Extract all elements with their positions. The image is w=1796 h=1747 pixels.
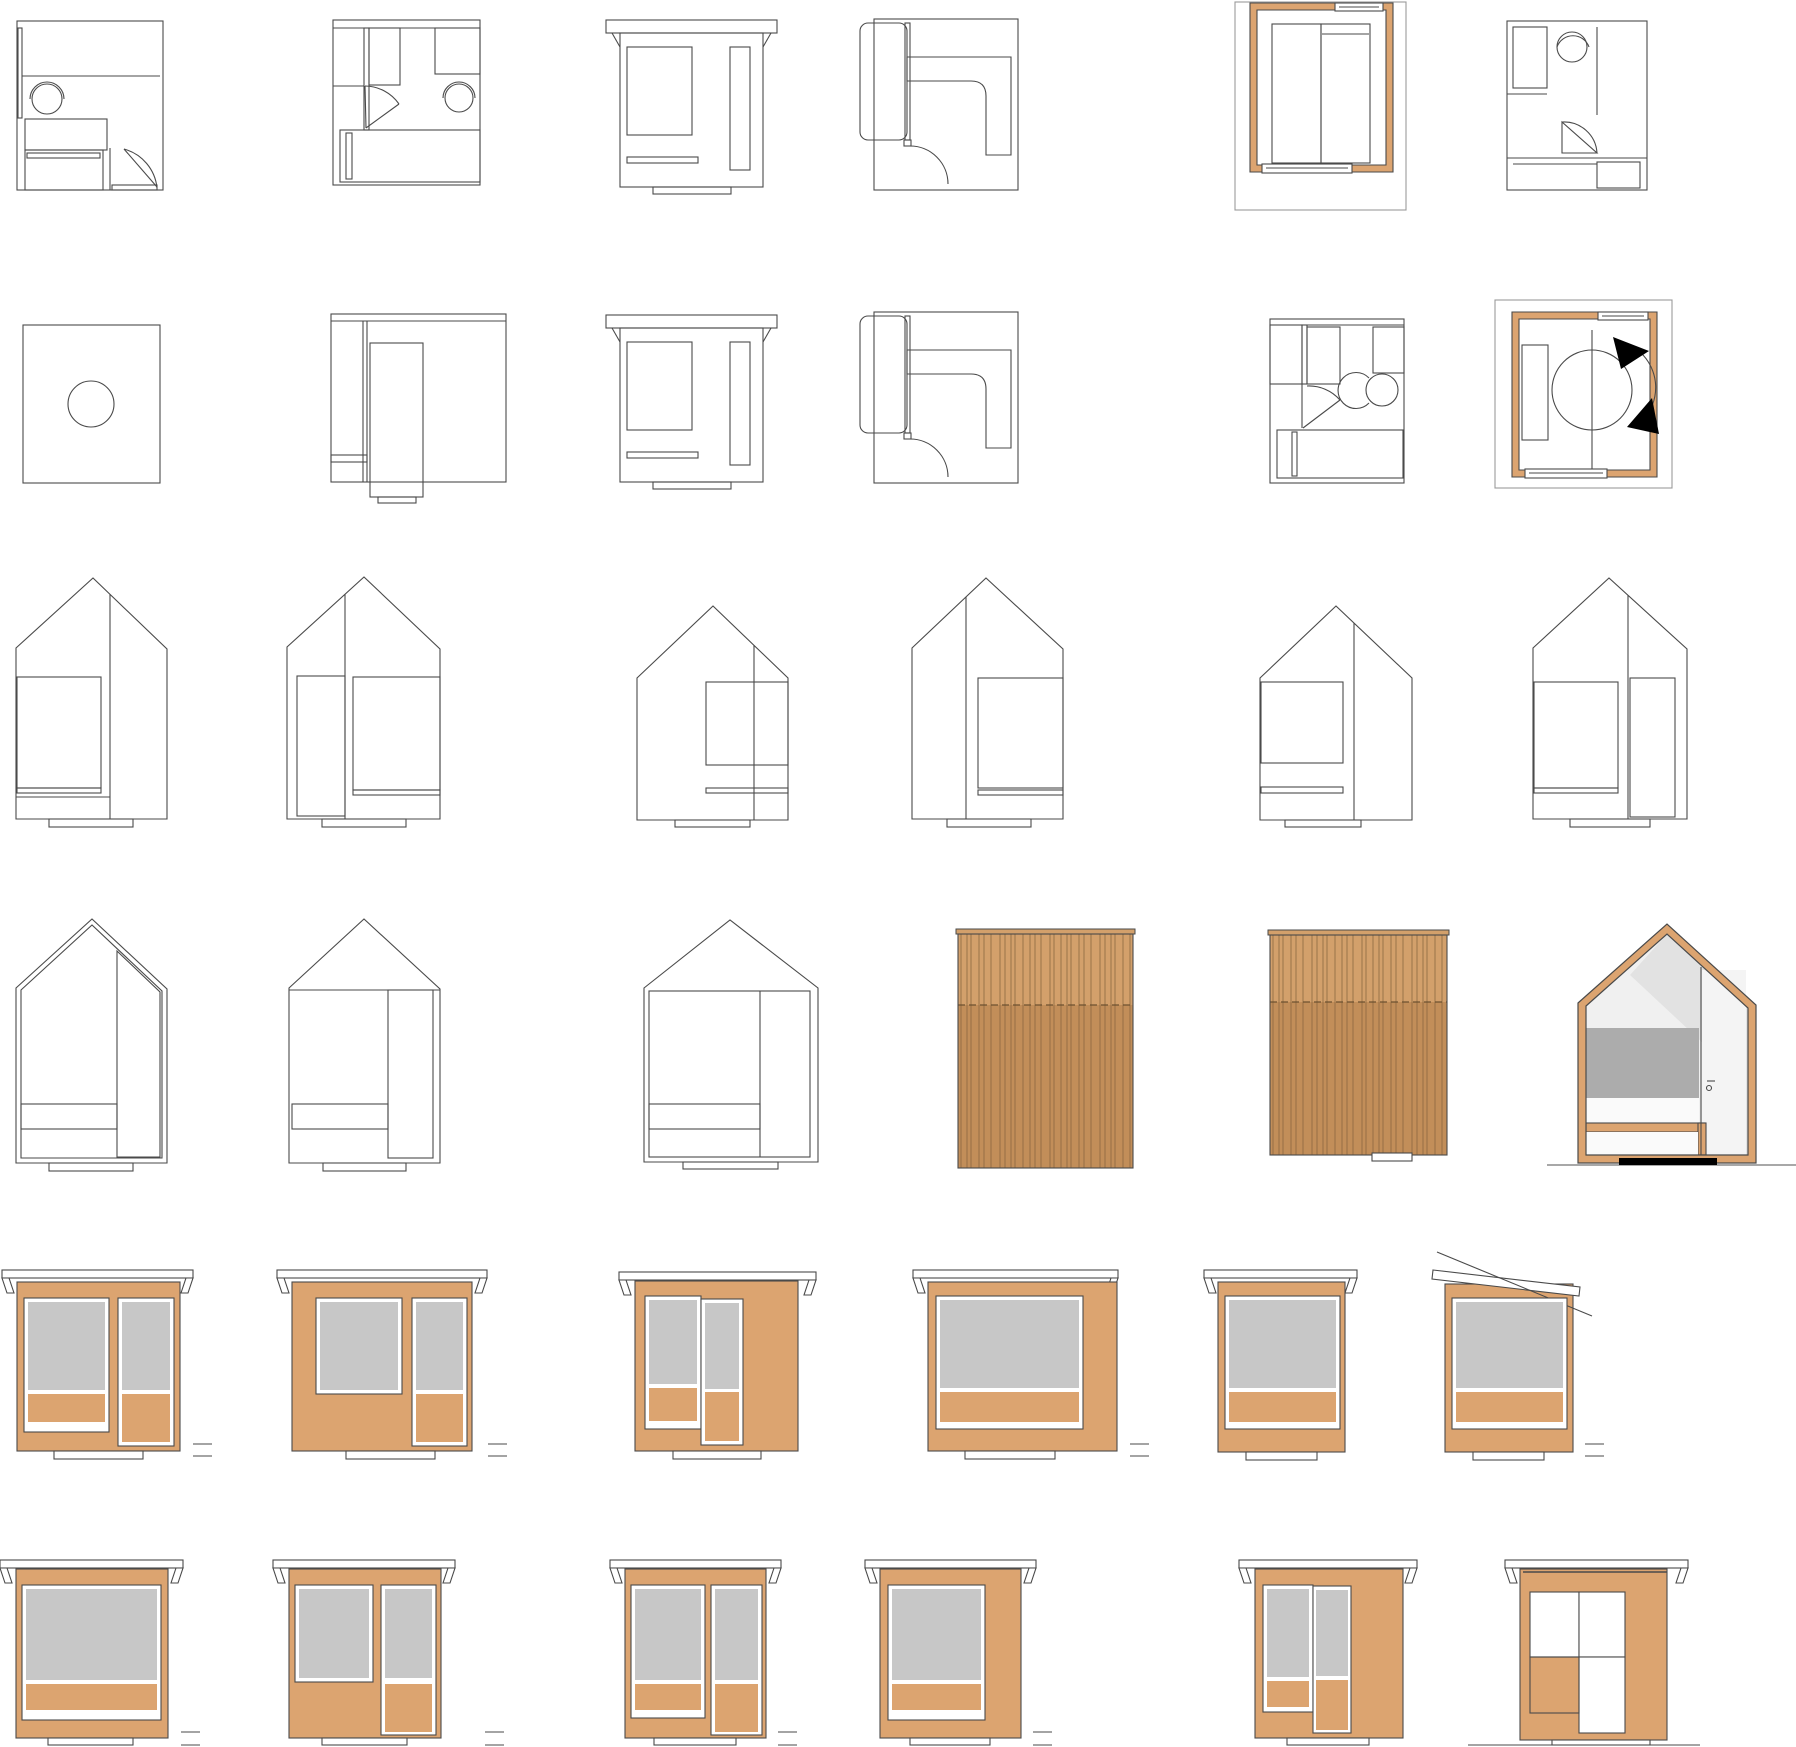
facade-1-glazing <box>122 1302 170 1390</box>
section-line-3-bench <box>649 1104 760 1129</box>
facade-1-door-panel <box>122 1394 170 1442</box>
elevation-line-6-door <box>1630 678 1675 817</box>
floor-plan-1-s7 <box>27 153 100 158</box>
facade-4-eave <box>913 1270 1118 1278</box>
elevation-line-5-gable-outline <box>1260 606 1412 820</box>
facade-10-s2 <box>1024 1568 1036 1583</box>
floor-plan-6-chair-symbol <box>1366 374 1398 406</box>
floor-plan-5-sofa-symbol <box>907 350 1011 448</box>
plan-rotating-table <box>1495 300 1672 488</box>
floor-plan-5-s0 <box>874 312 1018 483</box>
facade-panel-diagram <box>1468 1560 1700 1745</box>
facade-6-tilted-roof-spandrel <box>1456 1392 1563 1422</box>
floor-plan-6-s12 <box>1338 373 1369 409</box>
cross-section-colored-s6 <box>1586 1098 1699 1123</box>
drawing-sheet-svg <box>0 0 1796 1747</box>
facade-panel-diagram-panel-door <box>1579 1657 1625 1733</box>
facade-2-glazing <box>416 1302 463 1390</box>
facade-9-glazing <box>635 1589 701 1680</box>
section-line-3 <box>644 920 818 1169</box>
floor-plan-4-s1 <box>1513 27 1547 88</box>
facade-4-spandrel <box>940 1392 1079 1422</box>
floor-plan-3-door-swing <box>910 146 948 184</box>
facade-11-glazing <box>1316 1590 1348 1676</box>
facade-4 <box>913 1270 1149 1459</box>
facade-2-plinth <box>346 1451 435 1459</box>
facade-2-glazing <box>320 1302 398 1390</box>
elevation-line-5-window <box>1261 682 1343 763</box>
section-line-2-bench <box>292 1104 388 1129</box>
facade-8-s1 <box>273 1568 285 1583</box>
elevation-line-1-sill <box>17 788 101 793</box>
elevation-line-6-gable-outline <box>1533 578 1687 819</box>
facade-4-plinth <box>965 1451 1055 1459</box>
facade-2-eave <box>277 1270 487 1278</box>
facade-11-door-panel <box>1316 1680 1348 1730</box>
elevation-line-6-plinth <box>1570 819 1650 827</box>
elevation-line-4-window <box>978 678 1063 788</box>
facade-panel-diagram-panel-window <box>1530 1592 1579 1657</box>
roof-plan-2 <box>606 315 777 489</box>
roof-plan-2-eave-slab <box>606 315 777 328</box>
floor-plan-2-s5 <box>435 28 480 74</box>
floor-plan-5-door-zone <box>860 316 907 433</box>
elevation-line-6 <box>1533 578 1687 827</box>
facade-7-plinth <box>48 1738 133 1745</box>
facade-8-door-panel <box>385 1684 432 1732</box>
facade-9-eave <box>610 1560 781 1568</box>
elevation-line-5-sill <box>1261 787 1343 793</box>
section-line-3-inner-shell <box>649 991 810 1157</box>
floor-plan-2-door-leaf <box>366 104 399 128</box>
roof-plan-2-s1 <box>612 328 620 342</box>
floor-plan-4-s10 <box>1597 162 1640 188</box>
facade-3-s1 <box>619 1280 631 1295</box>
facade-9-glazing <box>715 1589 758 1680</box>
cross-section-colored-interior-wall <box>1586 1028 1699 1098</box>
timber-slat-wall-2 <box>1268 930 1449 1161</box>
cross-section-colored <box>1547 924 1796 1165</box>
floor-plan-1-chair-symbol <box>32 84 62 114</box>
facade-11-spandrel <box>1267 1681 1309 1707</box>
facade-panel-diagram-eave <box>1505 1560 1688 1568</box>
roof-plan-2-skylight <box>627 342 692 430</box>
facade-1-eave <box>2 1270 193 1278</box>
facade-6-tilted-roof-glazing <box>1456 1302 1563 1388</box>
plan-wardrobe-wardrobe-symbol <box>370 343 423 497</box>
facade-3-spandrel <box>649 1388 697 1421</box>
facade-1-spandrel <box>28 1394 105 1422</box>
roof-plan-1-s2 <box>763 33 771 47</box>
elevation-line-1-plinth <box>49 819 133 827</box>
floor-plan-4-s0 <box>1507 21 1647 190</box>
facade-10-glazing <box>892 1589 981 1680</box>
facade-9-s1 <box>610 1568 622 1583</box>
section-line-1-bench <box>21 1104 117 1129</box>
facade-11-plinth <box>1287 1738 1369 1745</box>
roof-plan-1-plinth <box>653 187 731 194</box>
facade-3-plinth <box>673 1451 761 1459</box>
plan-wardrobe-s4 <box>331 455 367 462</box>
plan-wardrobe-plinth <box>378 497 416 503</box>
elevation-line-2 <box>287 577 440 827</box>
timber-slat-wall-2-s0-lower <box>1270 1002 1447 1155</box>
section-line-1-door-panel <box>117 951 160 1157</box>
facade-2-door-panel <box>416 1394 463 1442</box>
floor-plan-3-sofa-symbol <box>907 57 1011 155</box>
facade-3 <box>619 1272 816 1459</box>
section-line-2-door-panel <box>388 990 433 1158</box>
facade-5-s1 <box>1204 1278 1216 1293</box>
timber-slat-wall-1-s0-cap <box>956 929 1135 934</box>
roof-plan-2-s5 <box>730 342 750 465</box>
floor-plan-3-s3 <box>904 140 911 146</box>
floor-plan-6-s4 <box>1307 327 1340 384</box>
facade-5-plinth <box>1246 1452 1317 1460</box>
facade-11-s2 <box>1405 1568 1417 1583</box>
elevation-line-5 <box>1260 606 1412 827</box>
floor-plan-5 <box>860 312 1018 483</box>
section-line-2 <box>289 919 440 1171</box>
elevation-line-2-gable-outline <box>287 577 440 819</box>
facade-panel-diagram-s2 <box>1505 1568 1517 1583</box>
floor-plan-2-s10 <box>346 133 352 179</box>
roof-plan-2-s2 <box>763 328 771 342</box>
facade-2-s2 <box>475 1278 487 1293</box>
floor-plan-6-s3 <box>1302 325 1307 384</box>
facade-8 <box>273 1560 504 1745</box>
floor-plan-1-s11 <box>112 185 157 190</box>
elevation-line-2-sill <box>353 790 440 795</box>
facade-10 <box>865 1560 1052 1745</box>
plan-rotating-table-bench-symbol <box>1522 345 1548 440</box>
roof-plan-1-s5 <box>730 47 750 170</box>
floor-plan-6-bed-symbol <box>1277 430 1403 478</box>
floor-plan-1-window-symbol <box>18 28 22 118</box>
facade-5-glazing <box>1229 1300 1336 1388</box>
facade-panel-diagram-plinth <box>1552 1740 1650 1745</box>
facade-8-plinth <box>322 1738 407 1745</box>
section-line-2-gable-outline <box>289 919 440 1163</box>
facade-1 <box>2 1270 212 1459</box>
facade-8-glazing <box>299 1589 369 1678</box>
plan-round-table-table-symbol <box>68 381 114 427</box>
floor-plan-2-bed-symbol <box>340 130 480 182</box>
section-line-3-plinth <box>683 1162 778 1169</box>
facade-10-plinth <box>910 1738 990 1745</box>
plan-round-table <box>23 325 160 483</box>
facade-11-eave <box>1239 1560 1417 1568</box>
floor-plan-6-door-swing <box>1307 386 1340 400</box>
floor-plan-3 <box>860 19 1018 190</box>
facade-5 <box>1204 1270 1357 1460</box>
facade-9 <box>610 1560 797 1745</box>
floor-plan-6-s2 <box>1270 325 1302 384</box>
facade-7-glazing <box>26 1589 157 1680</box>
facade-3-s2 <box>804 1280 816 1295</box>
facade-6-tilted-roof <box>1432 1252 1604 1460</box>
facade-6-tilted-roof-plinth <box>1473 1452 1544 1460</box>
timber-slat-wall-2-s0-upper <box>1270 935 1447 1002</box>
floor-plan-4-chair-symbol <box>1557 32 1587 62</box>
floor-plan-2-door-swing <box>365 86 399 104</box>
architectural-drawing-sheet <box>0 0 1796 1747</box>
floor-plan-1-bed-symbol <box>25 150 103 190</box>
timber-slat-wall-1 <box>956 929 1135 1168</box>
plan-wardrobe <box>331 314 506 503</box>
facade-7-s1 <box>0 1568 12 1583</box>
facade-5-spandrel <box>1229 1392 1336 1422</box>
facade-3-glazing <box>705 1303 739 1389</box>
roof-plan-1 <box>606 20 777 194</box>
floor-plan-3-s0 <box>874 19 1018 190</box>
elevation-line-1 <box>16 578 167 827</box>
facade-1-glazing <box>28 1302 105 1390</box>
facade-panel-diagram-panel-window <box>1579 1592 1625 1657</box>
cross-section-colored-s9 <box>1586 1132 1698 1155</box>
cross-section-colored-floor-member <box>1586 1123 1705 1132</box>
facade-7-eave <box>0 1560 183 1568</box>
elevation-line-5-plinth <box>1285 820 1361 827</box>
facade-7-spandrel <box>26 1684 157 1710</box>
floor-plan-insulated-1-bed-symbol <box>1321 24 1370 163</box>
timber-slat-wall-2-s0-cap <box>1268 930 1449 935</box>
facade-1-s2 <box>181 1278 193 1293</box>
floor-plan-6-door-leaf <box>1303 400 1340 428</box>
section-line-2-plinth <box>323 1163 406 1171</box>
floor-plan-2-s4 <box>369 28 400 85</box>
roof-plan-1-s1 <box>612 33 620 47</box>
elevation-line-4-plinth <box>947 819 1031 827</box>
facade-9-s2 <box>769 1568 781 1583</box>
facade-9-door-panel <box>715 1684 758 1732</box>
plan-round-table-s0 <box>23 325 160 483</box>
facade-8-glazing <box>385 1589 432 1678</box>
floor-plan-4 <box>1507 21 1647 190</box>
facade-2-s1 <box>277 1278 289 1293</box>
facade-10-spandrel <box>892 1684 981 1710</box>
floor-plan-6-s5 <box>1373 327 1404 373</box>
floor-plan-2-s0 <box>333 20 480 185</box>
elevation-line-3-window <box>706 682 788 765</box>
elevation-line-2-door <box>297 676 345 816</box>
floor-plan-5-s3 <box>904 433 911 439</box>
facade-1-plinth <box>54 1451 143 1459</box>
elevation-line-4-gable-outline <box>912 578 1063 819</box>
floor-plan-1-desk-symbol <box>25 119 107 150</box>
facade-1-s1 <box>2 1278 14 1293</box>
facade-11 <box>1239 1560 1417 1745</box>
facade-8-eave <box>273 1560 455 1568</box>
floor-plan-1-door-leaf <box>124 149 157 187</box>
facade-3-glazing <box>649 1300 697 1384</box>
facade-11-s1 <box>1239 1568 1251 1583</box>
cross-section-colored-base-pad <box>1619 1158 1717 1165</box>
timber-slat-wall-2-plinth <box>1372 1153 1412 1161</box>
facade-8-s2 <box>443 1568 455 1583</box>
floor-plan-5-door-swing <box>910 439 948 477</box>
cross-section-colored-post <box>1698 1123 1706 1155</box>
elevation-line-2-plinth <box>322 819 406 827</box>
facade-7-s2 <box>171 1568 183 1583</box>
floor-plan-1-s0 <box>17 21 163 190</box>
floor-plan-6-s10 <box>1292 432 1297 476</box>
floor-plan-2-s2 <box>364 28 369 130</box>
section-line-1 <box>16 919 167 1171</box>
elevation-line-1-window <box>17 677 101 788</box>
roof-plan-1-eave-slab <box>606 20 777 33</box>
facade-5-eave <box>1204 1270 1357 1278</box>
section-line-1-inner-shell <box>21 925 162 1158</box>
floor-plan-3-door-zone <box>860 23 907 140</box>
roof-plan-2-s6 <box>627 452 698 458</box>
facade-7 <box>0 1560 200 1745</box>
floor-plan-1 <box>17 21 163 190</box>
elevation-line-1-gable-outline <box>16 578 167 819</box>
floor-plan-2-s7 <box>365 86 366 128</box>
floor-plan-2 <box>333 20 480 185</box>
facade-4-s1 <box>913 1278 925 1293</box>
facade-3-door-panel <box>705 1392 739 1441</box>
elevation-line-6-sill <box>1534 788 1618 793</box>
roof-plan-1-s6 <box>627 157 698 163</box>
facade-3-eave <box>619 1272 816 1280</box>
facade-10-eave <box>865 1560 1036 1568</box>
facade-5-s2 <box>1345 1278 1357 1293</box>
facade-9-spandrel <box>635 1684 701 1710</box>
elevation-line-3-sill <box>706 788 788 793</box>
elevation-line-3-plinth <box>675 820 750 827</box>
floor-plan-2-chair-symbol <box>445 84 473 112</box>
section-line-1-gable-outline <box>16 919 167 1163</box>
elevation-line-4 <box>912 578 1063 827</box>
facade-9-plinth <box>654 1738 736 1745</box>
section-line-3-gable-outline <box>644 920 818 1162</box>
section-line-1-plinth <box>49 1163 133 1171</box>
floor-plan-6 <box>1270 319 1404 483</box>
floor-plan-insulated-1 <box>1235 2 1406 210</box>
facade-4-glazing <box>940 1300 1079 1388</box>
facade-2 <box>277 1270 507 1459</box>
plan-rotating-table-insulated-wall <box>1512 312 1657 477</box>
elevation-line-3 <box>637 606 788 827</box>
plan-wardrobe-s0 <box>331 314 506 482</box>
roof-plan-1-skylight <box>627 47 692 135</box>
elevation-line-6-window <box>1534 682 1618 788</box>
facade-11-glazing <box>1267 1589 1309 1677</box>
floor-plan-insulated-1-bed-symbol <box>1272 24 1321 163</box>
floor-plan-6-s0 <box>1270 319 1404 483</box>
facade-10-s1 <box>865 1568 877 1583</box>
elevation-line-4-sill <box>978 790 1063 795</box>
elevation-line-2-window <box>353 677 440 790</box>
roof-plan-2-plinth <box>653 482 731 489</box>
facade-panel-diagram-s3 <box>1676 1568 1688 1583</box>
plan-rotating-table-rotation-arrow <box>1613 337 1649 369</box>
